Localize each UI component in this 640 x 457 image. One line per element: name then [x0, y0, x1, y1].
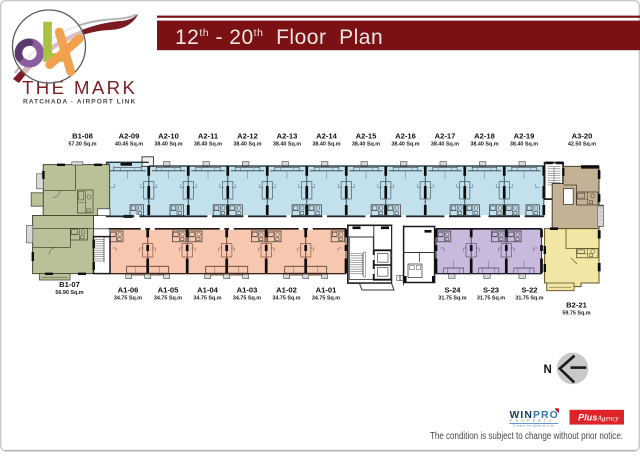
svg-text:57.30 Sq.m: 57.30 Sq.m: [68, 141, 96, 147]
svg-text:38.40 Sq.m: 38.40 Sq.m: [431, 141, 459, 147]
svg-text:34.75 Sq.m: 34.75 Sq.m: [312, 296, 340, 302]
svg-text:Agency: Agency: [597, 414, 620, 422]
svg-text:31.75 Sq.m: 31.75 Sq.m: [438, 296, 466, 302]
svg-text:38.40 Sq.m: 38.40 Sq.m: [233, 141, 261, 147]
svg-text:A1-05: A1-05: [158, 285, 179, 294]
svg-text:38.40 Sq.m: 38.40 Sq.m: [470, 141, 498, 147]
svg-text:S-24: S-24: [444, 285, 461, 294]
svg-text:S-23: S-23: [483, 285, 499, 294]
svg-text:RATCHADA · AIRPORT LINK: RATCHADA · AIRPORT LINK: [23, 99, 136, 106]
svg-text:38.40 Sq.m: 38.40 Sq.m: [391, 141, 419, 147]
svg-text:PROPERTY: PROPERTY: [510, 419, 555, 423]
svg-text:31.75 Sq.m: 31.75 Sq.m: [477, 296, 505, 302]
svg-text:34.75 Sq.m: 34.75 Sq.m: [233, 296, 261, 302]
svg-text:Plus: Plus: [578, 412, 597, 422]
svg-text:A2-15: A2-15: [356, 131, 377, 140]
svg-text:A1-03: A1-03: [237, 285, 258, 294]
svg-text:A2-17: A2-17: [435, 131, 456, 140]
svg-text:Create the Quality Life: Create the Quality Life: [513, 424, 554, 428]
svg-text:A2-18: A2-18: [474, 131, 495, 140]
svg-text:B1-07: B1-07: [59, 280, 80, 289]
svg-text:31.75 Sq.m: 31.75 Sq.m: [515, 296, 543, 302]
svg-text:42.50 Sq.m: 42.50 Sq.m: [568, 141, 596, 147]
svg-text:A2-14: A2-14: [316, 131, 337, 140]
svg-text:38.40 Sq.m: 38.40 Sq.m: [273, 141, 301, 147]
svg-text:A2-13: A2-13: [277, 131, 298, 140]
svg-text:34.75 Sq.m: 34.75 Sq.m: [193, 296, 221, 302]
svg-text:A3-20: A3-20: [572, 131, 593, 140]
svg-text:A1-06: A1-06: [118, 285, 139, 294]
svg-text:56.90 Sq.m: 56.90 Sq.m: [55, 290, 83, 296]
svg-text:A1-04: A1-04: [197, 285, 218, 294]
svg-text:38.40 Sq.m: 38.40 Sq.m: [312, 141, 340, 147]
svg-text:The condition is subject to ch: The condition is subject to change witho…: [430, 431, 623, 442]
svg-text:A2-11: A2-11: [198, 131, 219, 140]
svg-text:B1-08: B1-08: [72, 131, 93, 140]
svg-text:S-22: S-22: [521, 285, 537, 294]
svg-text:40.45 Sq.m: 40.45 Sq.m: [115, 141, 143, 147]
svg-text:59.75 Sq.m: 59.75 Sq.m: [562, 311, 590, 317]
svg-text:38.40 Sq.m: 38.40 Sq.m: [510, 141, 538, 147]
svg-text:A2-19: A2-19: [514, 131, 535, 140]
svg-text:A2-09: A2-09: [119, 131, 140, 140]
svg-text:34.75 Sq.m: 34.75 Sq.m: [114, 296, 142, 302]
svg-text:34.75 Sq.m: 34.75 Sq.m: [272, 296, 300, 302]
svg-text:34.75 Sq.m: 34.75 Sq.m: [154, 296, 182, 302]
svg-text:A1-01: A1-01: [316, 285, 337, 294]
svg-text:A1-02: A1-02: [276, 285, 297, 294]
svg-text:A2-10: A2-10: [158, 131, 179, 140]
svg-text:A2-12: A2-12: [237, 131, 258, 140]
svg-text:A2-16: A2-16: [395, 131, 416, 140]
svg-text:38.40 Sq.m: 38.40 Sq.m: [352, 141, 380, 147]
svg-text:N: N: [544, 364, 552, 376]
svg-text:B2-21: B2-21: [566, 300, 587, 309]
svg-text:38.40 Sq.m: 38.40 Sq.m: [194, 141, 222, 147]
svg-text:38.40 Sq.m: 38.40 Sq.m: [154, 141, 182, 147]
